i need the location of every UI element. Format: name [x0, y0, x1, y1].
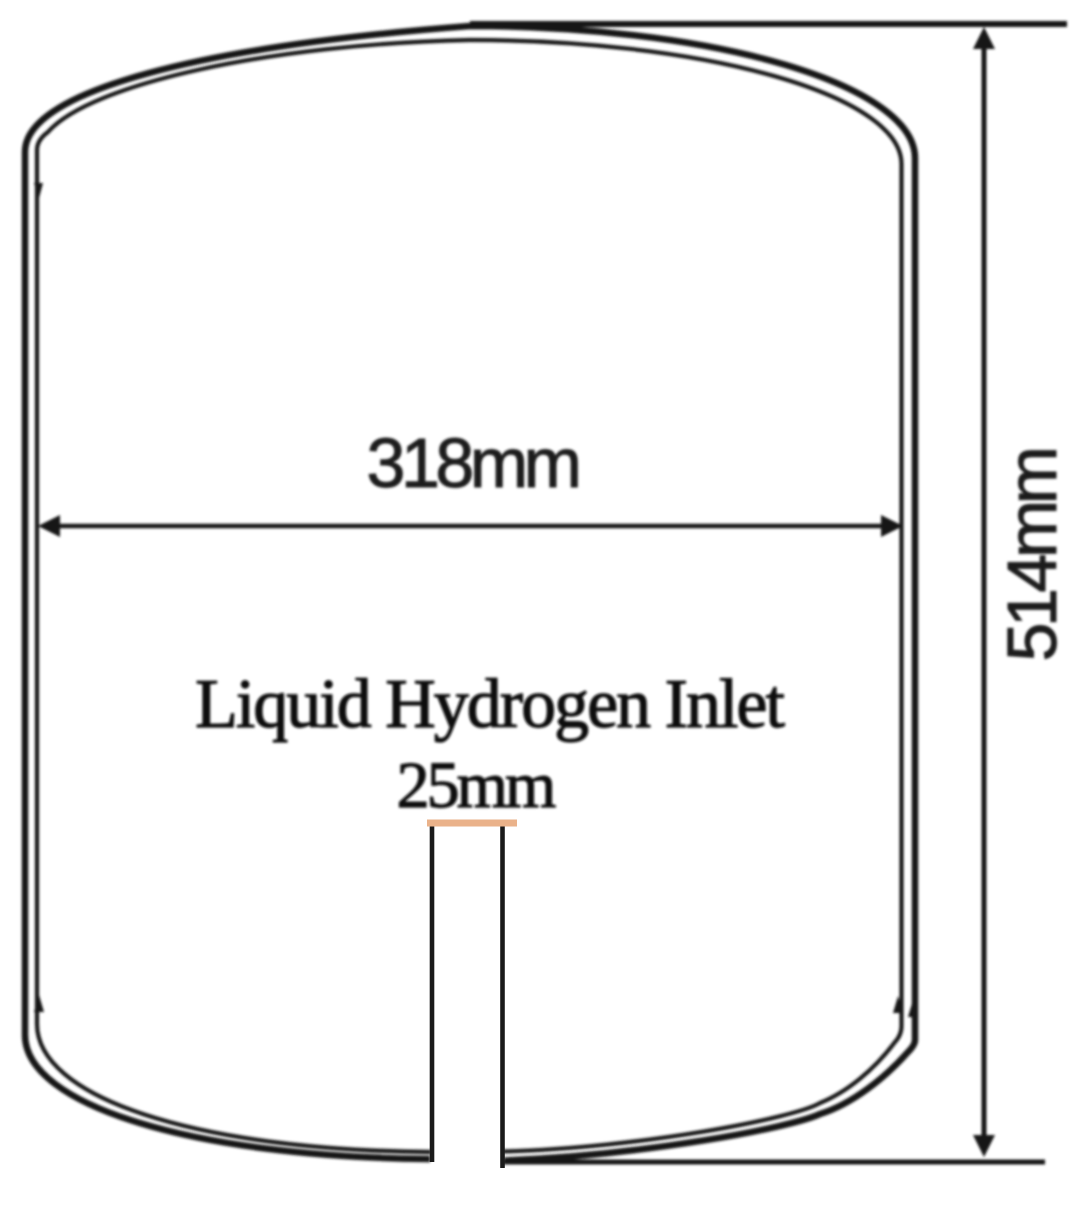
svg-text:318mm: 318mm	[367, 424, 578, 502]
svg-text:Liquid Hydrogen Inlet: Liquid Hydrogen Inlet	[195, 666, 785, 743]
svg-text:514mm: 514mm	[993, 450, 1071, 661]
svg-text:25mm: 25mm	[397, 749, 556, 822]
